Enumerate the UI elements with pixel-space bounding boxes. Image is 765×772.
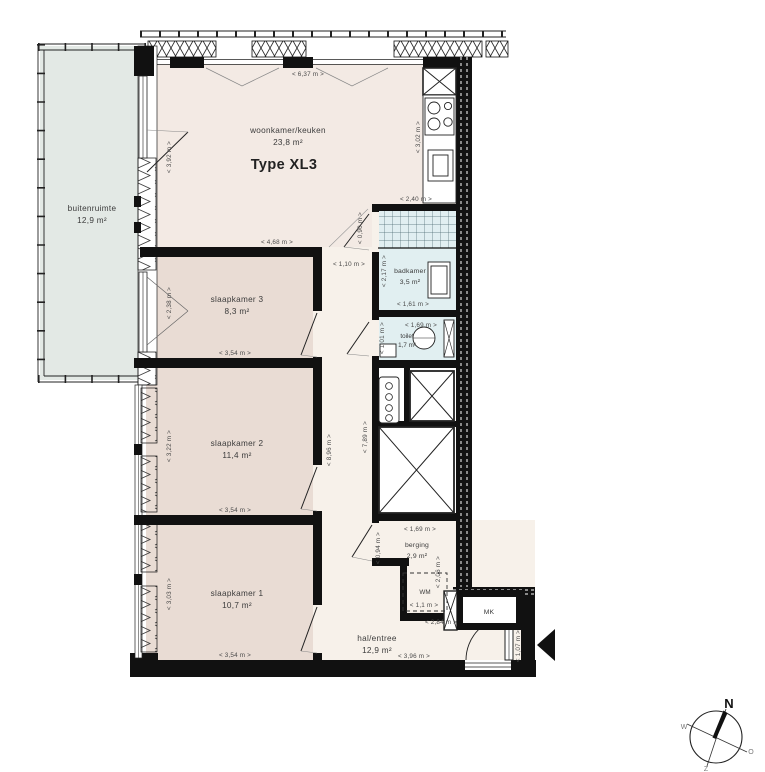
dim-110: < 1,10 m > (333, 261, 365, 268)
floor-plan-svg: buitenruimte 12,9 m² woonkamer/keuken 23… (0, 0, 765, 772)
dim-354-s1: < 3,54 m > (219, 652, 251, 659)
compass-o: O (748, 749, 754, 756)
label-slaapkamer3-area: 8,3 m² (224, 307, 249, 316)
dim-322: < 3,22 m > (166, 430, 173, 462)
dim-303: < 3,03 m > (166, 578, 173, 610)
compass-icon: N W O Z (681, 696, 755, 772)
mv-unit-icon (379, 377, 399, 423)
dim-217: < 2,17 m > (381, 255, 388, 287)
dim-161: < 1,61 m > (397, 301, 429, 308)
dim-302: < 3,02 m > (415, 121, 422, 153)
compass-n: N (724, 696, 733, 711)
dim-094: < 0,94 m > (375, 532, 382, 564)
dim-238: < 2,38 m > (166, 287, 173, 319)
label-hal-area: 12,9 m² (362, 646, 392, 655)
dim-396: < 3,96 m > (398, 653, 430, 660)
label-slaapkamer2-area: 11,4 m² (222, 451, 251, 460)
label-mk: MK (484, 609, 495, 616)
dim-468: < 4,68 m > (261, 239, 293, 246)
label-slaapkamer1-area: 10,7 m² (222, 601, 252, 610)
dim-107: < 1,07 m > (515, 630, 522, 662)
dim-090: < 0,90 m > (357, 212, 364, 244)
entrance-arrow-icon (537, 629, 555, 661)
shower-grid (378, 210, 456, 248)
label-badkamer-area: 3,5 m² (400, 279, 421, 286)
label-woonkamer-area: 23,8 m² (273, 138, 303, 147)
label-woonkamer: woonkamer/keuken (249, 126, 326, 135)
compass-z: Z (704, 766, 709, 772)
label-slaapkamer2: slaapkamer 2 (211, 439, 264, 448)
dim-354-s3: < 3,54 m > (219, 350, 251, 357)
gallery-hatch-blocks (148, 41, 508, 57)
dim-169-berging: < 1,69 m > (404, 526, 436, 533)
dim-896: < 8,96 m > (326, 434, 333, 466)
label-badkamer: badkamer (394, 268, 426, 275)
label-type: Type XL3 (251, 157, 318, 173)
gallery-edge (140, 31, 506, 37)
label-berging: berging (405, 542, 429, 549)
label-toilet: toilet (400, 333, 414, 340)
dim-206: < 2,06 m > (435, 556, 442, 588)
washbasin-icon (428, 262, 450, 298)
compass-w: W (681, 724, 688, 731)
dim-11: < 1,1 m > (410, 602, 439, 609)
dim-789: < 7,89 m > (362, 421, 369, 453)
label-slaapkamer1: slaapkamer 1 (211, 589, 264, 598)
floorplan-page: buitenruimte 12,9 m² woonkamer/keuken 23… (0, 0, 765, 772)
label-toilet-area: 1,7 m² (398, 342, 416, 349)
dim-240: < 2,40 m > (400, 196, 432, 203)
label-hal: hal/entree (357, 634, 397, 643)
label-buitenruimte-area: 12,9 m² (77, 216, 107, 225)
label-wm: WM (419, 589, 430, 596)
dim-284: < 2,84 m > (425, 619, 457, 626)
dim-392: < 3,92 m > (166, 141, 173, 173)
dim-354-s2: < 3,54 m > (219, 507, 251, 514)
balcony-floor (40, 46, 140, 380)
dim-169-toilet: < 1,69 m > (405, 322, 437, 329)
dim-637: < 6,37 m > (292, 71, 324, 78)
label-berging-area: 2,9 m² (407, 553, 428, 560)
label-slaapkamer3: slaapkamer 3 (211, 295, 264, 304)
dim-101: < 1,01 m > (379, 322, 386, 354)
label-buitenruimte: buitenruimte (68, 204, 117, 213)
kitchen-fixtures (423, 68, 456, 203)
